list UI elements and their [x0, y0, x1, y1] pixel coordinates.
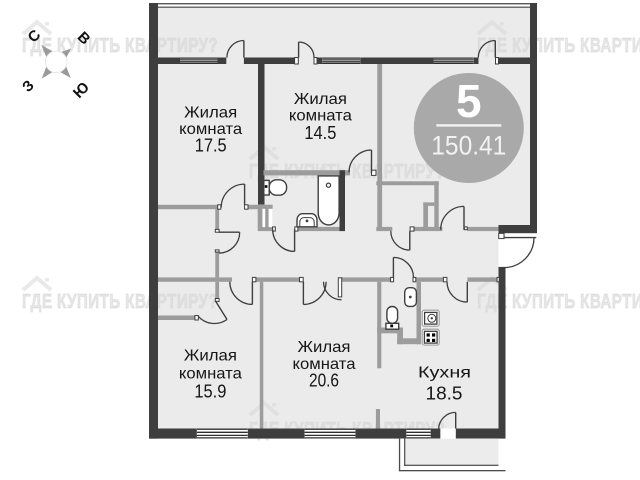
svg-text:18.5: 18.5	[426, 384, 463, 404]
svg-text:Жилая: Жилая	[184, 104, 237, 121]
svg-text:5: 5	[456, 75, 482, 127]
svg-text:комната: комната	[179, 366, 242, 383]
svg-text:20.6: 20.6	[309, 370, 339, 390]
svg-text:Кухня: Кухня	[418, 365, 471, 382]
svg-text:17.5: 17.5	[195, 135, 227, 155]
svg-text:150.41: 150.41	[431, 131, 506, 161]
svg-text:15.9: 15.9	[194, 381, 226, 401]
svg-text:Жилая: Жилая	[294, 91, 347, 108]
svg-text:14.5: 14.5	[304, 123, 336, 143]
svg-text:Жилая: Жилая	[184, 348, 237, 365]
svg-text:Жилая: Жилая	[298, 339, 351, 356]
